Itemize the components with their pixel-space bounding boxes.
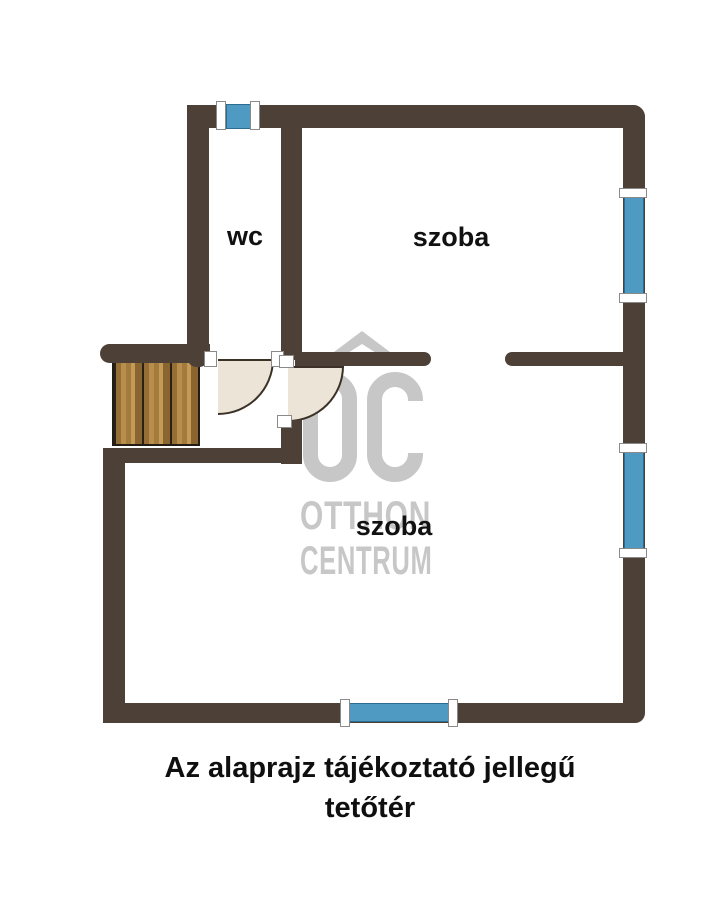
staircase xyxy=(112,357,200,446)
window-sill xyxy=(340,699,350,727)
caption: Az alaprajz tájékoztató jellegű tetőtér xyxy=(20,748,720,828)
wall-left-lower xyxy=(103,448,125,723)
wall-middle-right-segment xyxy=(505,352,623,366)
wc-label: wc xyxy=(207,221,283,251)
door-jamb xyxy=(204,351,217,367)
window-sill xyxy=(448,699,458,727)
window-sill xyxy=(619,548,647,558)
door-jamb xyxy=(277,415,292,428)
window-sill xyxy=(619,188,647,198)
wall-divider-upper xyxy=(281,128,302,360)
watermark-letter-c-gap xyxy=(406,401,426,453)
caption-line-1: Az alaprajz tájékoztató jellegű xyxy=(20,748,720,788)
room-label-bottom: szoba xyxy=(344,511,444,541)
room-label-top: szoba xyxy=(401,222,501,252)
window-wc xyxy=(226,104,252,129)
wall-stairs-top xyxy=(100,344,210,363)
window-sill xyxy=(619,443,647,453)
wall-under-stairs xyxy=(103,448,297,463)
window-bottom xyxy=(349,703,449,722)
wall-middle-left-segment xyxy=(295,352,431,366)
window-sill xyxy=(216,101,226,130)
window-right-lower xyxy=(624,452,644,549)
watermark-text-centrum: CENTRUM xyxy=(300,541,432,581)
caption-line-2: tetőtér xyxy=(20,788,720,828)
window-right-upper xyxy=(624,197,644,295)
floorplan-image: OTTHON CENTRUM wc szoba szoba Az alapraj… xyxy=(0,0,720,900)
door-jamb xyxy=(279,355,294,368)
window-sill xyxy=(619,293,647,303)
wall-wc-left xyxy=(187,105,209,367)
door-wc xyxy=(218,359,274,415)
window-sill xyxy=(250,101,260,130)
